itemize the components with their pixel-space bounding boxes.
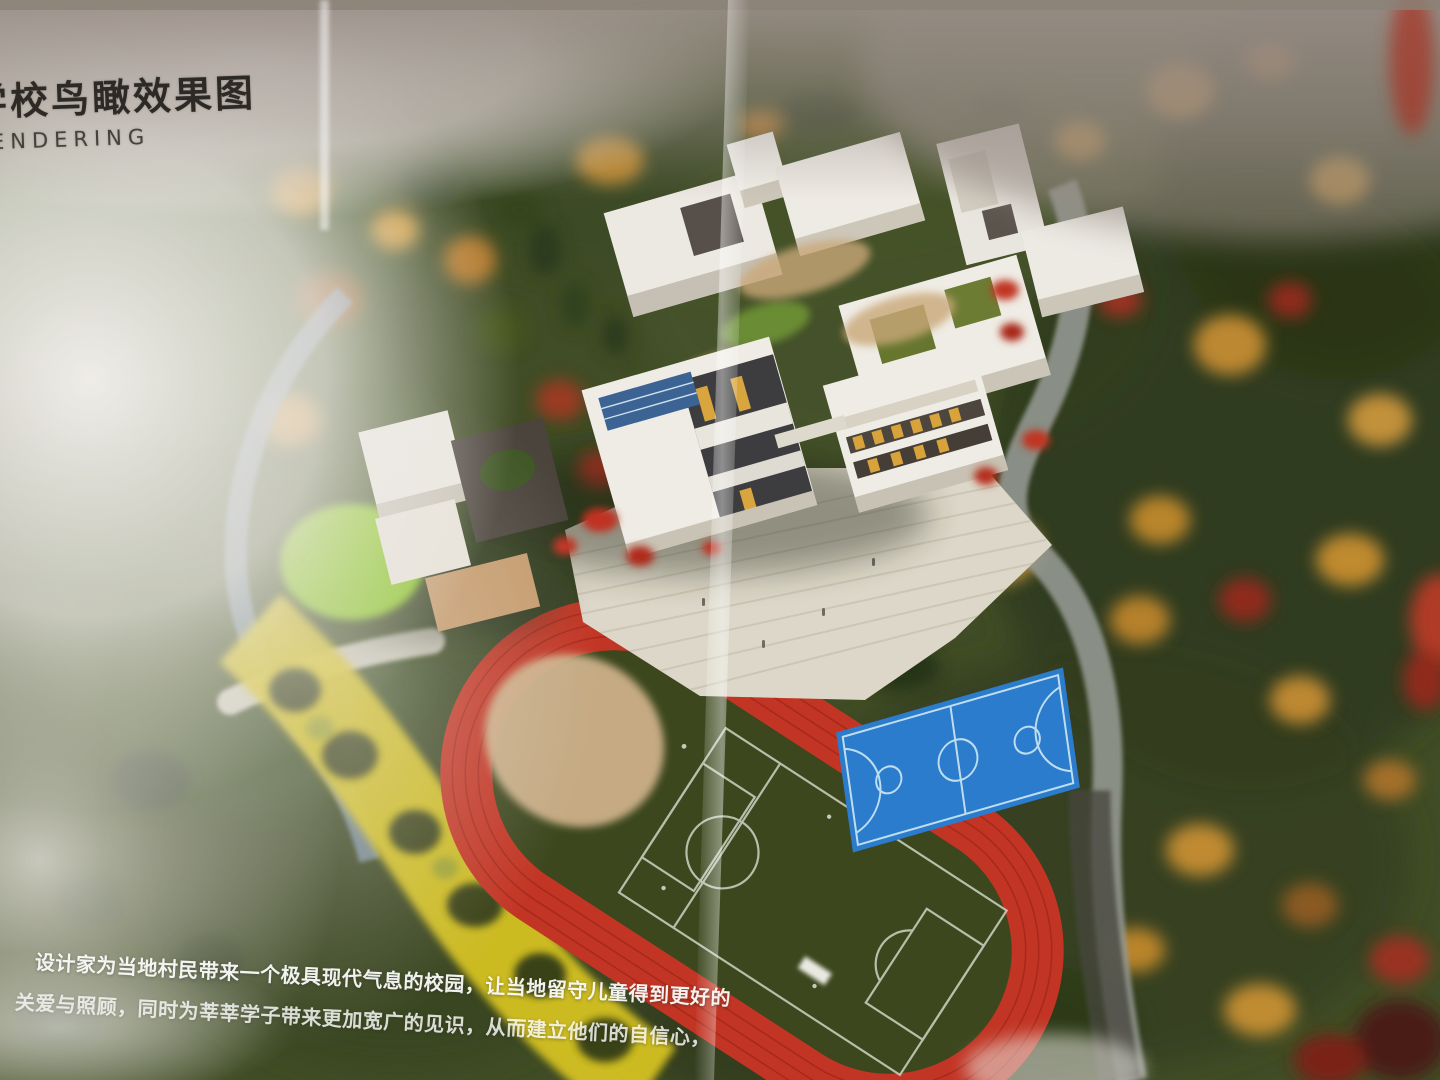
poster-crease-top-left (320, 0, 329, 230)
top-wall-strip (0, 0, 1440, 10)
campus-rendering-scene (0, 0, 1440, 1080)
photographed-poster: 学校鸟瞰效果图 RENDERING 设计家为当地村民带来一个极具现代气息的校园，… (0, 0, 1440, 1080)
